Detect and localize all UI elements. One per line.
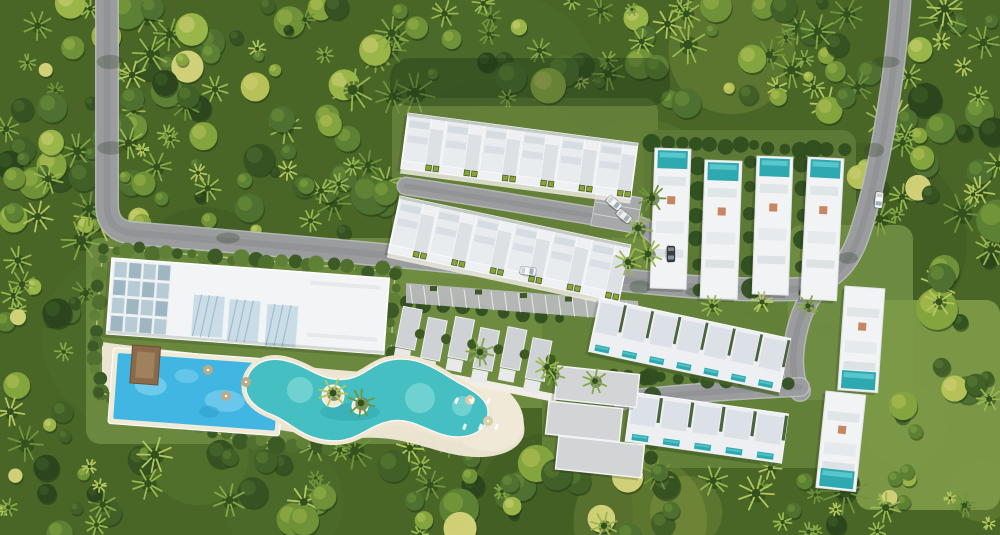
building-villa-1 (647, 148, 691, 292)
site-plan-svg (0, 0, 1000, 535)
building-villa-3 (749, 156, 793, 298)
building-villa-east-1 (835, 286, 885, 396)
car-villa-lane (665, 245, 675, 263)
building-villa-2 (697, 160, 742, 302)
masterplan-aerial-image (0, 0, 1000, 535)
building-villa-4 (797, 157, 844, 304)
